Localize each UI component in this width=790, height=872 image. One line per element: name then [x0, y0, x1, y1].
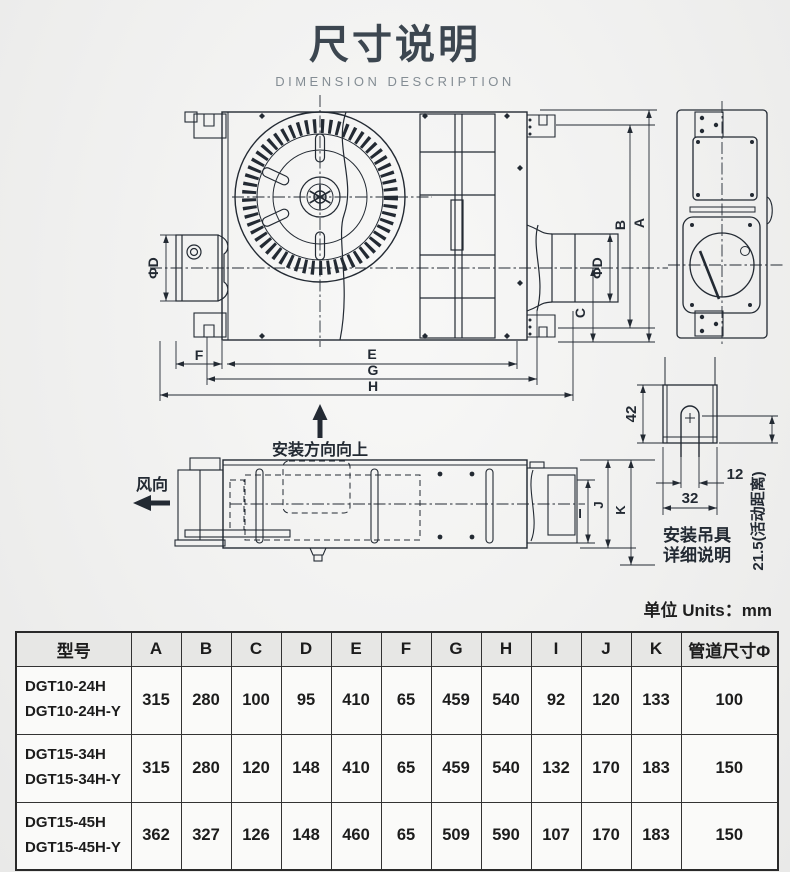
top-view-dimensions — [160, 110, 657, 401]
table-cell: 280 — [181, 734, 231, 802]
wind-direction-arrow — [133, 495, 170, 511]
page-title: 尺寸说明 — [0, 12, 790, 70]
header-i: I — [531, 632, 581, 666]
install-direction-label: 安装方向向上 — [272, 440, 368, 459]
table-cell: 540 — [481, 734, 531, 802]
model-name: DGT10-24H-Y — [25, 700, 131, 725]
bracket-dim-12: 12 — [727, 466, 744, 483]
dim-label-k: K — [613, 505, 628, 515]
dim-label-j: J — [591, 501, 606, 508]
table-cell: 65 — [381, 666, 431, 734]
table-cell: 327 — [181, 802, 231, 870]
dimension-spec-table: 型号 A B C D E F G H I J K 管道尺寸Φ DGT10-24H… — [15, 631, 779, 871]
table-cell: 148 — [281, 734, 331, 802]
hanger-caption-line2: 详细说明 — [663, 545, 731, 565]
wind-direction-label: 风向 — [136, 475, 168, 494]
table-cell: 65 — [381, 734, 431, 802]
header-g: G — [431, 632, 481, 666]
dim-label-c: C — [572, 308, 588, 318]
table-row: DGT15-34H DGT15-34H-Y 315 280 120 148 41… — [16, 734, 778, 802]
table-cell: 150 — [681, 802, 778, 870]
side-view-drawing — [175, 458, 585, 561]
table-cell: 315 — [131, 734, 181, 802]
table-cell: 133 — [631, 666, 681, 734]
table-cell: 120 — [231, 734, 281, 802]
model-name: DGT10-24H — [25, 675, 131, 700]
bracket-dim-42: 42 — [623, 406, 640, 423]
hanger-caption-line1: 安装吊具 — [663, 525, 731, 545]
table-cell: 362 — [131, 802, 181, 870]
header-model: 型号 — [16, 632, 131, 666]
header-j: J — [581, 632, 631, 666]
table-cell: 183 — [631, 734, 681, 802]
table-cell: 459 — [431, 666, 481, 734]
dimension-description-page: 尺寸说明 DIMENSION DESCRIPTION — [0, 0, 790, 872]
table-cell: 100 — [231, 666, 281, 734]
table-cell: 150 — [681, 734, 778, 802]
table-cell: 148 — [281, 802, 331, 870]
table-cell: 183 — [631, 802, 681, 870]
dim-label-i: I — [578, 506, 582, 521]
header-duct-size: 管道尺寸Φ — [681, 632, 778, 666]
table-cell: 459 — [431, 734, 481, 802]
model-name: DGT15-34H-Y — [25, 768, 131, 793]
dim-label-f: F — [195, 347, 204, 363]
header-f: F — [381, 632, 431, 666]
table-cell: 92 — [531, 666, 581, 734]
drawing-labels: ΦD ΦD C B A F E G H 安装方向向上 风向 I J K 42 1… — [136, 218, 767, 571]
table-row: DGT10-24H DGT10-24H-Y 315 280 100 95 410… — [16, 666, 778, 734]
table-cell: 410 — [331, 734, 381, 802]
end-view-drawing — [668, 101, 784, 347]
dim-label-b: B — [612, 220, 628, 230]
model-cell: DGT15-34H DGT15-34H-Y — [16, 734, 131, 802]
table-cell: 170 — [581, 802, 631, 870]
header-b: B — [181, 632, 231, 666]
table-cell: 280 — [181, 666, 231, 734]
dim-label-a: A — [631, 218, 647, 228]
table-cell: 126 — [231, 802, 281, 870]
model-name: DGT15-34H — [25, 743, 131, 768]
model-cell: DGT15-45H DGT15-45H-Y — [16, 802, 131, 870]
dim-label-h: H — [368, 378, 378, 394]
table-header-row: 型号 A B C D E F G H I J K 管道尺寸Φ — [16, 632, 778, 666]
table-cell: 540 — [481, 666, 531, 734]
title-block: 尺寸说明 DIMENSION DESCRIPTION — [0, 12, 790, 89]
bracket-dim-215: 21.5(活动距离) — [749, 471, 767, 570]
install-direction-arrow — [313, 404, 328, 438]
units-label: 单位 Units：mm — [644, 596, 772, 621]
table-cell: 509 — [431, 802, 481, 870]
header-e: E — [331, 632, 381, 666]
table-row: DGT15-45H DGT15-45H-Y 362 327 126 148 46… — [16, 802, 778, 870]
table-cell: 590 — [481, 802, 531, 870]
top-view-drawing — [150, 95, 668, 347]
table-cell: 170 — [581, 734, 631, 802]
header-d: D — [281, 632, 331, 666]
table-cell: 120 — [581, 666, 631, 734]
dim-label-e: E — [367, 346, 376, 362]
table-cell: 410 — [331, 666, 381, 734]
model-name: DGT15-45H-Y — [25, 836, 131, 861]
table-cell: 100 — [681, 666, 778, 734]
table-cell: 132 — [531, 734, 581, 802]
table-cell: 107 — [531, 802, 581, 870]
header-h: H — [481, 632, 531, 666]
table-cell: 65 — [381, 802, 431, 870]
header-k: K — [631, 632, 681, 666]
table-cell: 315 — [131, 666, 181, 734]
table-cell: 460 — [331, 802, 381, 870]
dim-label-phi-d-right: ΦD — [589, 257, 605, 279]
dim-label-phi-d-left: ΦD — [145, 257, 161, 279]
technical-drawing: ΦD ΦD C B A F E G H 安装方向向上 风向 I J K 42 1… — [0, 85, 790, 615]
model-cell: DGT10-24H DGT10-24H-Y — [16, 666, 131, 734]
header-a: A — [131, 632, 181, 666]
bracket-dim-32: 32 — [682, 490, 699, 507]
technical-drawing-svg: ΦD ΦD C B A F E G H 安装方向向上 风向 I J K 42 1… — [0, 85, 790, 615]
header-c: C — [231, 632, 281, 666]
dim-label-g: G — [368, 362, 379, 378]
table-cell: 95 — [281, 666, 331, 734]
model-name: DGT15-45H — [25, 811, 131, 836]
